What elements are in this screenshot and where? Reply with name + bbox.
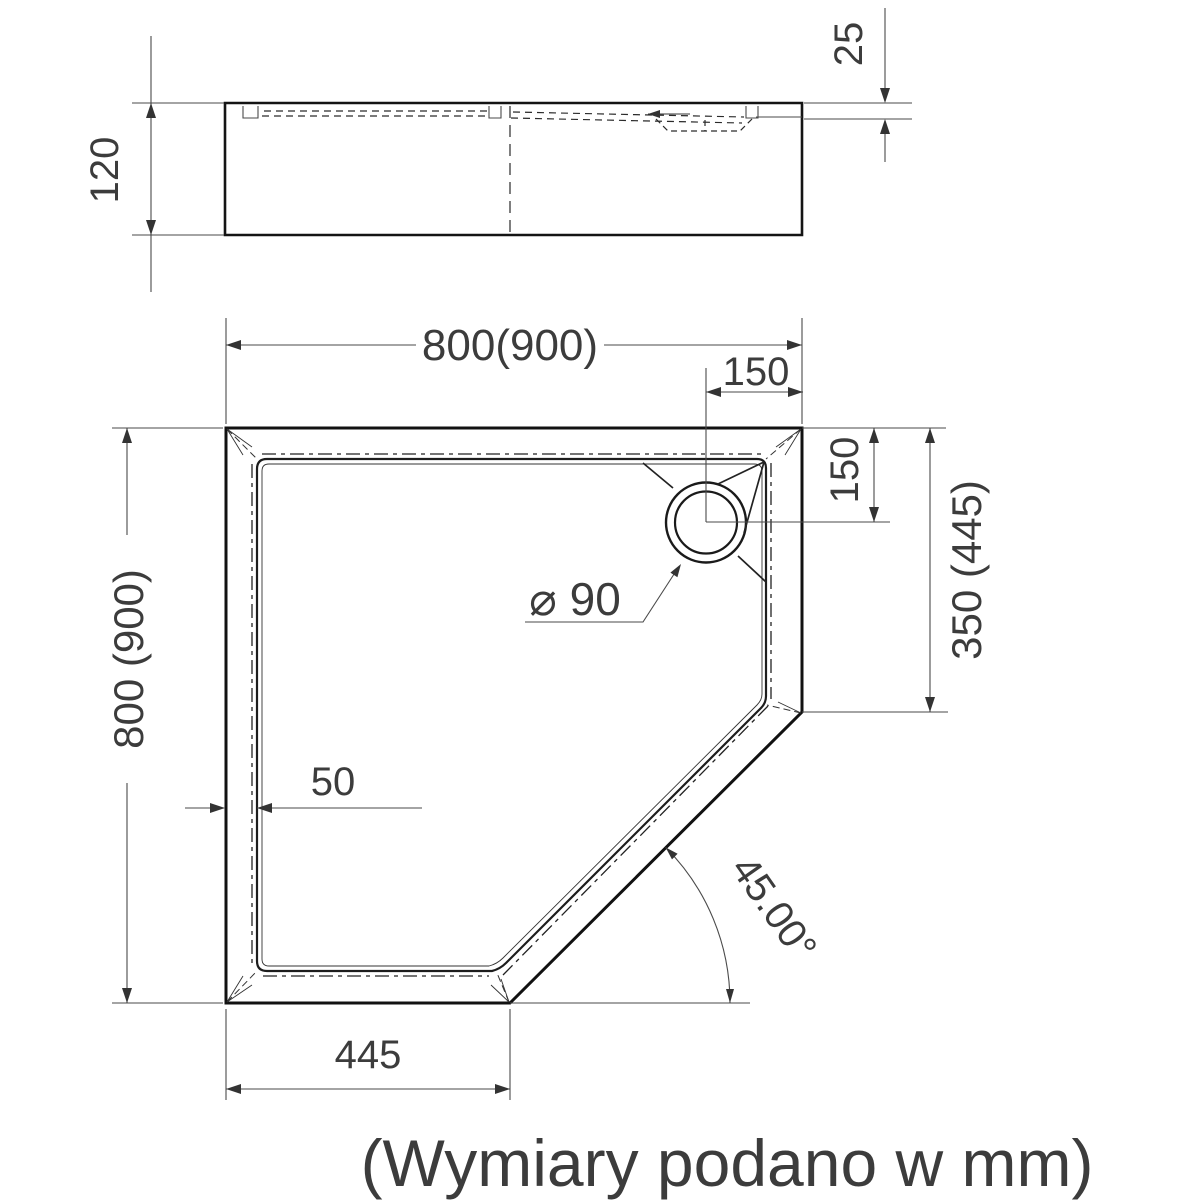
units-caption: (Wymiary podano w mm) <box>361 1126 1094 1200</box>
corner-span-label: 350 (445) <box>943 480 990 660</box>
drain-offset-right-label: 150 <box>823 437 867 504</box>
dim-plan-height: 800 (900) <box>104 428 223 1003</box>
shower-tray-drawing: 120 25 <box>0 0 1200 1200</box>
drain-offset-top-label: 150 <box>723 350 790 394</box>
dim-rim-depth: 25 <box>804 8 912 162</box>
tray-outer-edge <box>226 428 802 1003</box>
dim-side-height: 120 <box>83 36 224 292</box>
plan-width-label: 800(900) <box>422 321 598 370</box>
rim-depth-label: 25 <box>827 22 871 67</box>
plan-height-label: 800 (900) <box>105 569 152 749</box>
dim-plan-width: 800(900) <box>226 318 802 424</box>
drain-diameter-label: ⌀ 90 <box>529 573 621 625</box>
front-edge-label: 445 <box>335 1033 402 1077</box>
wall-thickness-label: 50 <box>311 760 356 804</box>
dim-front-edge: 445 <box>226 1009 510 1100</box>
technical-drawing-page: 120 25 <box>0 0 1200 1200</box>
side-elevation-view: 120 25 <box>83 8 912 292</box>
corner-angle-label: 45.00° <box>722 848 825 968</box>
plan-view: 800(900) 150 150 350 (445) <box>104 318 990 1100</box>
side-height-label: 120 <box>83 137 127 204</box>
